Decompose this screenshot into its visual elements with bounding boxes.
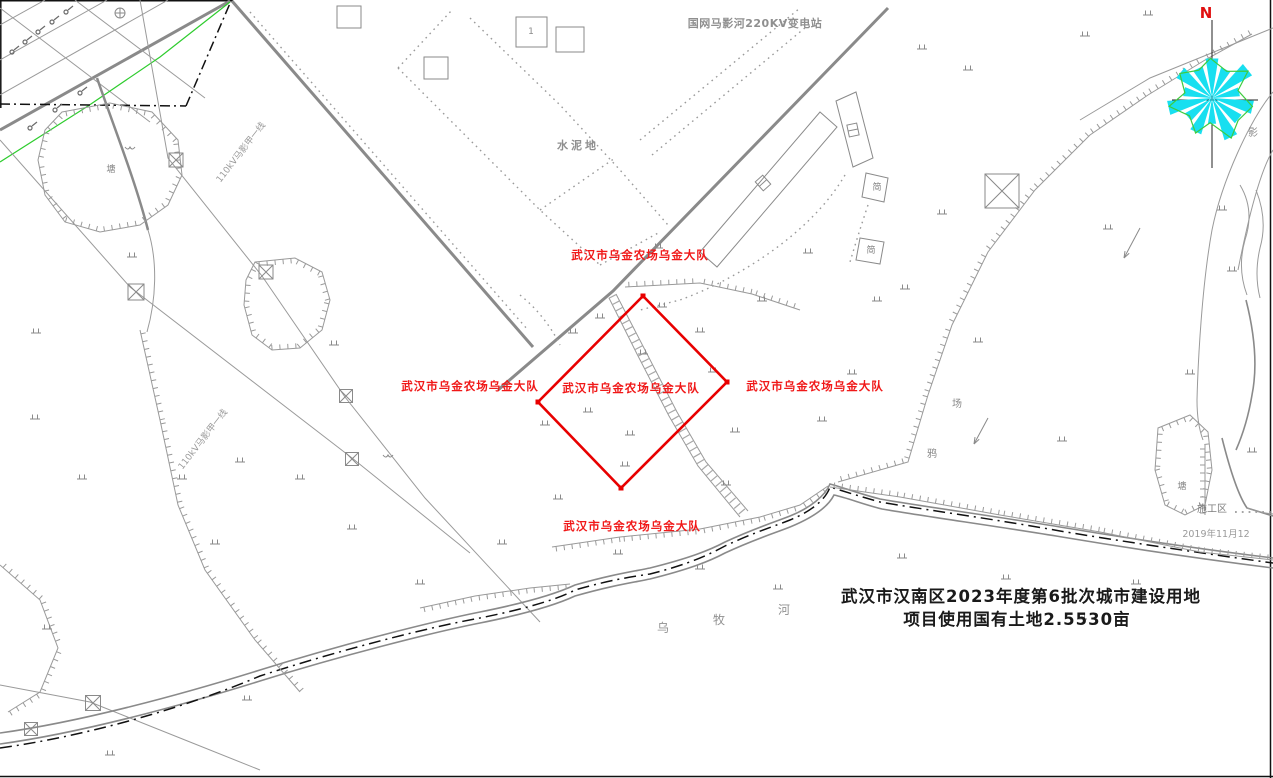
pylon-icon: [259, 265, 273, 279]
compass-rose: [1167, 20, 1258, 168]
grass-symbol: [210, 540, 220, 545]
grass-symbol: [730, 428, 740, 433]
grass-symbol: [77, 475, 87, 480]
building: [556, 27, 584, 52]
field-boundary-left-ticks: [141, 333, 303, 692]
dotted-road: [470, 18, 668, 225]
grass-symbol: [497, 540, 507, 545]
power-line: [140, 0, 540, 622]
dotted-road-layer: [250, 8, 1273, 512]
pole-icon: [78, 87, 87, 95]
area-char-1: 场: [952, 397, 962, 410]
grass-symbol: [1217, 206, 1227, 211]
boundary-dashdot: [186, 1, 231, 106]
grass-symbol: [973, 338, 983, 343]
grass-symbol: [30, 415, 40, 420]
grass-symbol: [1131, 580, 1141, 585]
grass-symbol: [917, 45, 927, 50]
power-line: [0, 140, 470, 553]
area-char-2: 鸦: [927, 447, 937, 460]
pylon-icon: [985, 174, 1019, 208]
map-line: [1256, 190, 1263, 298]
building: [337, 6, 361, 28]
grass-symbol: [31, 329, 41, 334]
dotted-road: [652, 22, 812, 155]
path-hatch-top-ticks: [629, 278, 796, 308]
grass-symbol: [773, 585, 783, 590]
map-line: [1247, 508, 1273, 514]
pylon-icon: [346, 453, 359, 466]
shed-label-2: 简: [866, 244, 875, 256]
window-symbol: [847, 123, 859, 137]
grass-symbol: [1143, 11, 1153, 16]
river-name-char-3: 河: [778, 603, 790, 617]
dotted-road: [250, 12, 528, 330]
map-line: [75, 0, 205, 98]
compound-south-wall: [498, 8, 888, 390]
grass-symbol: [553, 495, 563, 500]
pylon-icon: [169, 153, 183, 167]
parcel-vertex-marker: [536, 400, 541, 405]
compass-rose-petal: [1206, 59, 1219, 99]
field-boundary-left: [140, 330, 300, 692]
pond-label-left: 塘: [106, 163, 115, 175]
project-annotation-line1: 武汉市汉南区2023年度第6批次城市建设用地: [841, 586, 1201, 606]
grass-symbol: [963, 66, 973, 71]
grass-symbol: [1057, 437, 1067, 442]
pole-icon: [64, 6, 73, 14]
embankment-right-ticks: [841, 31, 1251, 481]
building-long: [700, 112, 837, 267]
river-name-char-1: 乌: [657, 620, 669, 635]
grass-symbol: [1185, 370, 1195, 375]
map-line: [1236, 300, 1255, 450]
powerline-label-2: 110kV马影甲一线: [175, 406, 230, 471]
grass-symbol: [105, 751, 115, 756]
grass-symbol: [1001, 575, 1011, 580]
pond-small-ticks: [244, 258, 329, 350]
grass-symbol: [625, 431, 635, 436]
construction-road: [1222, 438, 1273, 516]
grass-symbol: [872, 297, 882, 302]
benchmark-icon: [115, 8, 125, 18]
north-arrow-label: N: [1200, 4, 1213, 22]
building-number-label: 1: [528, 27, 534, 37]
grass-symbol: [1080, 32, 1090, 37]
river-name-char-2: 牧: [713, 613, 725, 627]
brigade-label-left: 武汉市乌金农场乌金大队: [401, 379, 539, 393]
pylon-icon: [340, 390, 353, 403]
flow-arrow-icon: [974, 418, 988, 444]
cadastral-map: 武汉市汉南区2023年度第6批次城市建设用地 项目使用国有土地2.5530亩 N…: [0, 0, 1273, 778]
flow-arrow-icon: [1124, 228, 1140, 258]
map-line: [1240, 185, 1249, 295]
grass-symbol: [1227, 267, 1237, 272]
grass-symbol: [613, 550, 623, 555]
grass-symbol: [595, 314, 605, 319]
map-canvas: 武汉市汉南区2023年度第6批次城市建设用地 项目使用国有土地2.5530亩 N…: [0, 0, 1273, 778]
grass-symbol: [295, 475, 305, 480]
bird-mark: [125, 147, 135, 149]
window-symbol: [755, 175, 770, 191]
grass-symbol: [415, 580, 425, 585]
concrete-ground-label: 水泥地: [557, 138, 599, 152]
map-line: [1238, 150, 1273, 270]
area-char-3: 影: [1248, 127, 1258, 139]
pylon-icon: [128, 284, 144, 300]
canal-rungs: [612, 296, 744, 514]
grass-symbol: [127, 253, 137, 258]
grass-symbol: [937, 210, 947, 215]
grass-symbol: [817, 417, 827, 422]
pole-icon: [28, 122, 37, 130]
grass-symbol: [803, 249, 813, 254]
map-line: [147, 230, 155, 332]
compound-west-wall: [232, 1, 533, 347]
map-line: [1197, 92, 1273, 440]
map-line: [0, 0, 45, 25]
brigade-label-center: 武汉市乌金农场乌金大队: [562, 381, 700, 395]
grass-symbol: [695, 328, 705, 333]
grass-symbol: [1247, 448, 1257, 453]
dotted-road: [850, 205, 868, 262]
grass-symbol: [847, 370, 857, 375]
grass-symbol: [347, 525, 357, 530]
dotted-road: [398, 68, 600, 265]
brigade-label-right: 武汉市乌金农场乌金大队: [746, 379, 884, 393]
dotted-road: [540, 158, 615, 210]
grass-symbol: [540, 421, 550, 426]
dotted-road: [398, 10, 452, 68]
construction-area-label: 施工区: [1197, 502, 1227, 515]
pylon-icon: [86, 696, 101, 711]
pole-icon: [50, 16, 59, 24]
grass-symbol: [1103, 225, 1113, 230]
powerline-label-1: 110kV马影甲一线: [213, 119, 268, 184]
grass-symbol: [620, 462, 630, 467]
building: [424, 57, 448, 79]
project-annotation-line2: 项目使用国有土地2.5530亩: [903, 609, 1130, 629]
canal-rail: [616, 294, 748, 511]
parcel-vertex-marker: [725, 380, 730, 385]
brigade-label-bottom: 武汉市乌金农场乌金大队: [563, 519, 701, 533]
pole-icon: [36, 26, 45, 34]
field-boundary-bottomleft-ticks: [3, 564, 61, 715]
survey-date-label: 2019年11月12: [1182, 528, 1249, 540]
road-thick-nw: [0, 1, 230, 130]
brigade-label-top: 武汉市乌金农场乌金大队: [571, 248, 709, 262]
shed-label-1: 简: [872, 181, 881, 193]
grass-symbol: [897, 554, 907, 559]
grass-symbol: [177, 475, 187, 480]
grass-symbol: [329, 341, 339, 346]
parcel-vertex-marker: [641, 294, 646, 299]
building-layer: [337, 6, 888, 267]
river-bank-hatch-right-ticks: [834, 483, 1268, 560]
dotted-road: [640, 175, 845, 310]
substation-label: 国网马影河220KV变电站: [688, 16, 823, 30]
map-line: [0, 0, 107, 60]
grass-symbol: [583, 408, 593, 413]
grass-symbol: [900, 285, 910, 290]
pond-label-right: 塘: [1177, 480, 1186, 492]
grass-symbol: [242, 696, 252, 701]
parcel-vertex-marker: [619, 486, 624, 491]
compass-rose-petal: [1208, 98, 1216, 124]
grass-symbol: [235, 458, 245, 463]
